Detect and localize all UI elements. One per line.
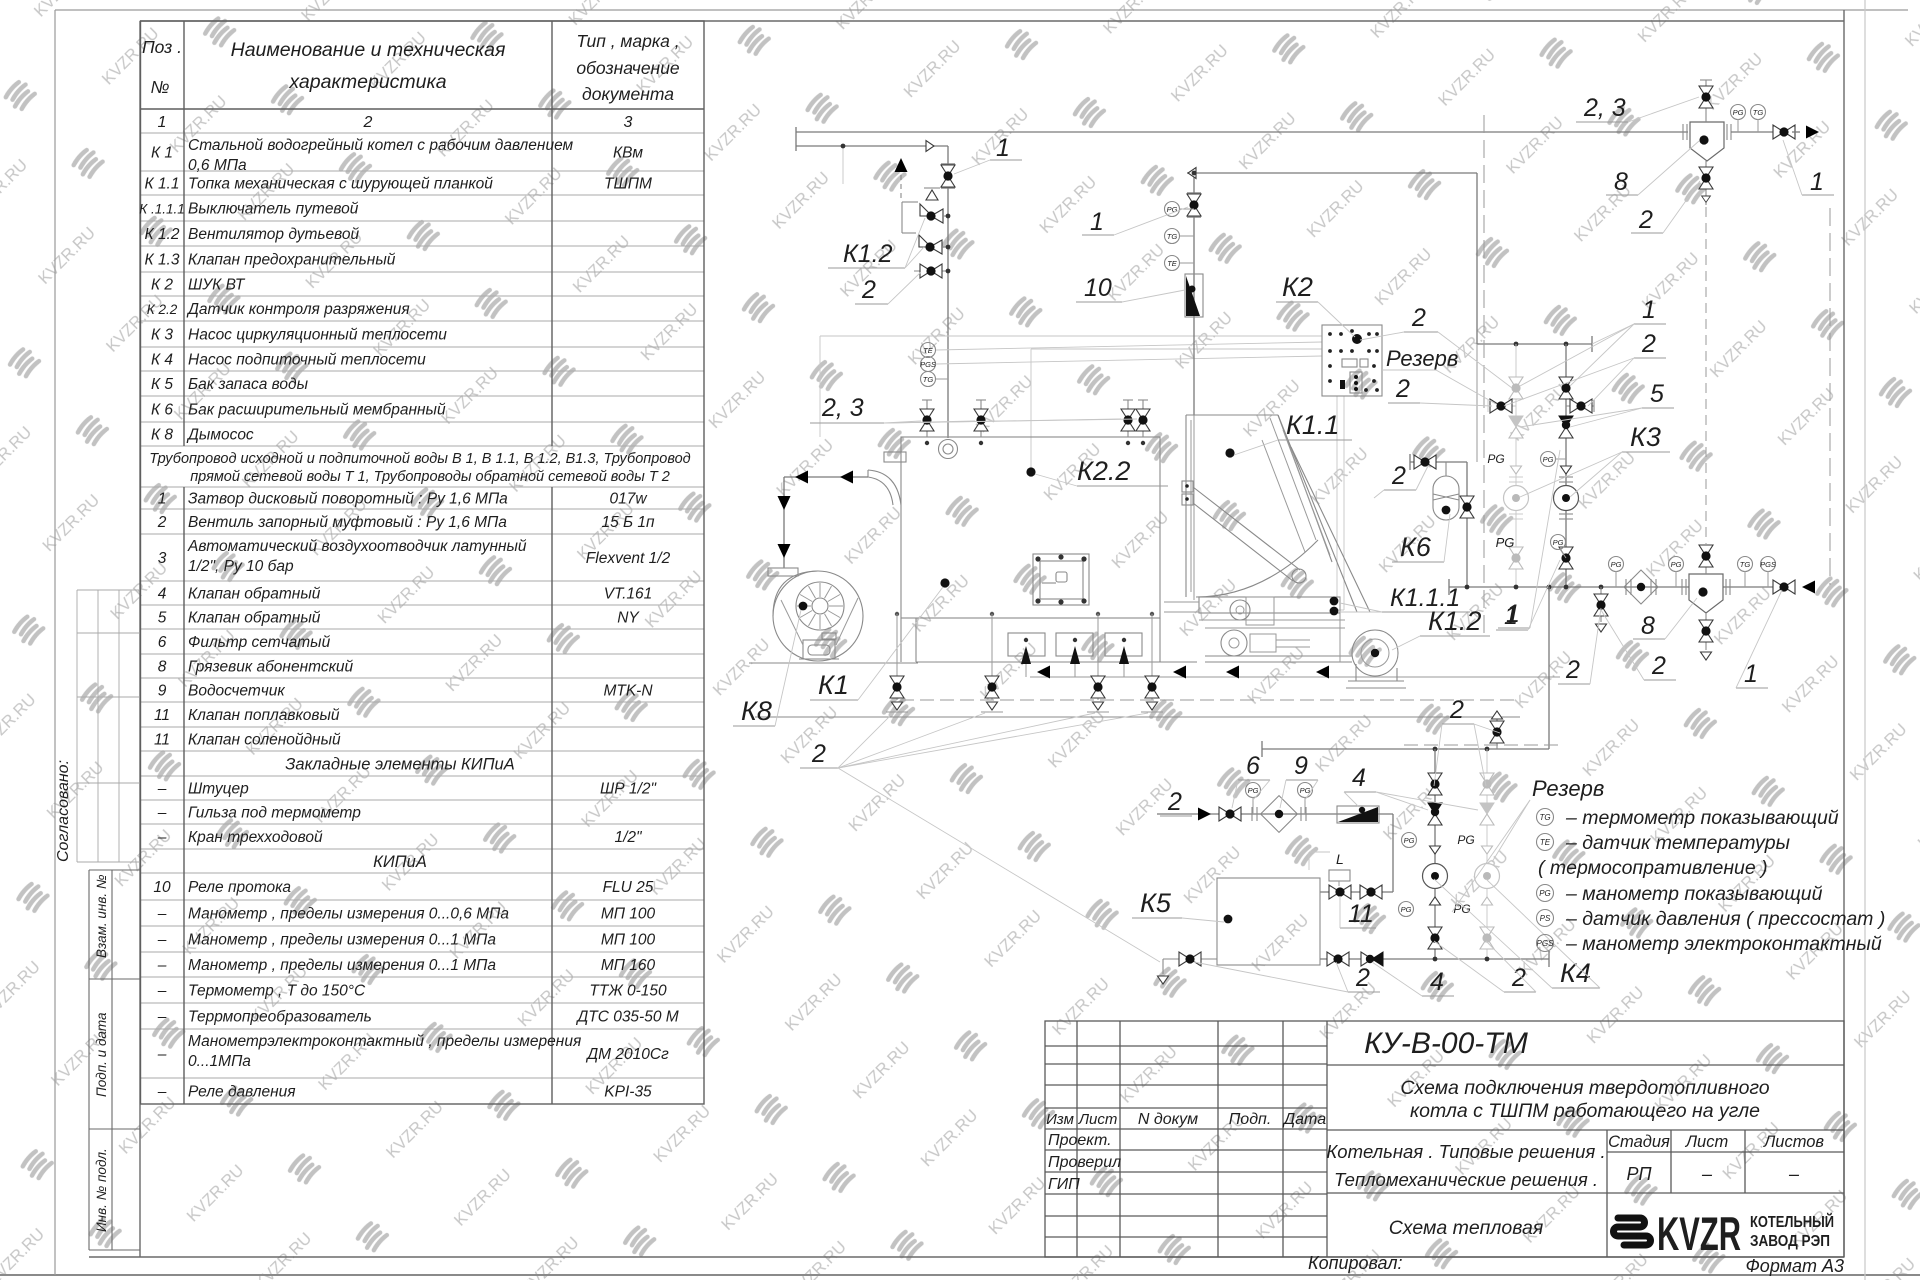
svg-text:5: 5 — [1650, 380, 1664, 408]
svg-text:Проверил: Проверил — [1048, 1154, 1121, 1171]
svg-text:ТТЖ 0-150: ТТЖ 0-150 — [589, 983, 667, 1000]
svg-text:Лист: Лист — [1685, 1133, 1728, 1151]
svg-text:Стадия: Стадия — [1608, 1133, 1670, 1151]
svg-text:Лист: Лист — [1078, 1111, 1118, 1128]
svg-text:–: – — [157, 983, 167, 1000]
svg-text:обозначение: обозначение — [576, 58, 680, 78]
svg-text:Согласовано:: Согласовано: — [55, 760, 72, 862]
svg-text:2: 2 — [811, 740, 826, 768]
svg-text:Стальной водогрейный котел с р: Стальной водогрейный котел с рабочим дав… — [188, 137, 574, 154]
svg-text:Проект.: Проект. — [1048, 1132, 1112, 1149]
svg-text:К3: К3 — [1630, 422, 1661, 452]
svg-text:К1.1: К1.1 — [1286, 410, 1339, 440]
svg-text:Наименование и техническая: Наименование и техническая — [231, 39, 506, 61]
svg-text:ШР 1/2": ШР 1/2" — [600, 781, 657, 798]
svg-text:К8: К8 — [741, 696, 772, 726]
svg-text:10: 10 — [153, 879, 171, 896]
svg-text:Котельная . Типовые решения .: Котельная . Типовые решения . — [1326, 1141, 1605, 1162]
svg-text:К2.2: К2.2 — [1077, 456, 1130, 486]
svg-text:PG: PG — [1733, 108, 1744, 117]
svg-text:L: L — [1336, 851, 1344, 867]
svg-text:4: 4 — [158, 586, 167, 603]
svg-text:Инв. № подл.: Инв. № подл. — [94, 1148, 109, 1232]
svg-text:К 2: К 2 — [151, 277, 173, 294]
svg-text:прямой сетевой воды Т 1,: прямой сетевой воды Т 1, Трубопроводы об… — [190, 469, 670, 485]
svg-text:Бак расширительный мембранный: Бак расширительный мембранный — [188, 402, 446, 419]
svg-text:NY: NY — [617, 610, 640, 627]
svg-text:Автоматический воздухоотводчик: Автоматический воздухоотводчик латунный — [187, 538, 527, 555]
svg-text:PG: PG — [1401, 905, 1412, 914]
svg-text:– датчик температуры: – датчик температуры — [1565, 832, 1790, 854]
svg-text:К .1.1.1: К .1.1.1 — [139, 202, 184, 217]
svg-text:1: 1 — [996, 134, 1010, 162]
svg-text:3: 3 — [158, 550, 167, 567]
svg-text:1: 1 — [1504, 602, 1518, 630]
svg-text:– манометр электроконтактный: – манометр электроконтактный — [1565, 933, 1882, 955]
svg-text:ДТС 035-50 М: ДТС 035-50 М — [575, 1009, 678, 1026]
svg-text:11: 11 — [154, 707, 170, 724]
svg-text:PGS: PGS — [920, 360, 936, 369]
svg-text:–: – — [157, 932, 167, 949]
svg-text:5: 5 — [158, 610, 167, 627]
svg-text:№: № — [151, 77, 170, 97]
svg-text:КУ-В-00-ТМ: КУ-В-00-ТМ — [1364, 1027, 1528, 1060]
svg-text:КИПиА: КИПиА — [373, 853, 427, 871]
svg-text:К 1.3: К 1.3 — [145, 252, 180, 269]
svg-text:Затвор дисковый поворотный :: Затвор дисковый поворотный : Ру 1,6 МПа — [188, 491, 508, 508]
svg-text:Закладные элементы КИПиА: Закладные элементы КИПиА — [285, 756, 514, 774]
svg-text:( термосопративление ): ( термосопративление ) — [1538, 857, 1768, 879]
svg-text:К1.2: К1.2 — [843, 240, 893, 268]
svg-text:6: 6 — [158, 634, 167, 651]
svg-text:– датчик давления ( прессост: – датчик давления ( прессостат ) — [1565, 908, 1885, 930]
svg-text:Террмопреобразователь: Террмопреобразователь — [188, 1009, 372, 1026]
svg-text:Топка механическая с шурующей: Топка механическая с шурующей планкой — [188, 176, 493, 193]
svg-text:Схема тепловая: Схема тепловая — [1389, 1217, 1544, 1239]
svg-text:PG: PG — [1539, 889, 1551, 898]
svg-text:Flexvent 1/2: Flexvent 1/2 — [586, 550, 671, 567]
svg-text:1: 1 — [158, 114, 167, 131]
svg-text:PG: PG — [1457, 833, 1474, 847]
svg-text:2: 2 — [1411, 304, 1426, 332]
svg-text:1: 1 — [1810, 168, 1824, 196]
svg-text:Клапан соленойдный: Клапан соленойдный — [188, 732, 341, 749]
svg-text:Манометр , пределы измерения: Манометр , пределы измерения 0...1 МПа — [188, 932, 496, 949]
svg-text:Тип , марка ,: Тип , марка , — [576, 31, 679, 51]
svg-text:К 8: К 8 — [151, 427, 173, 444]
svg-text:3: 3 — [624, 114, 633, 131]
svg-text:Грязевик абонентский: Грязевик абонентский — [188, 659, 354, 676]
svg-text:11: 11 — [1348, 900, 1374, 928]
svg-text:11: 11 — [154, 732, 170, 749]
svg-text:TE: TE — [1540, 838, 1551, 847]
svg-text:Схема подключения твердотоплив: Схема подключения твердотопливного — [1400, 1077, 1769, 1099]
svg-text:К 1.2: К 1.2 — [145, 226, 180, 243]
svg-text:МП 100: МП 100 — [601, 906, 656, 923]
svg-text:Термометр , Т до 150°С: Термометр , Т до 150°С — [188, 983, 366, 1000]
svg-text:К 5: К 5 — [151, 376, 173, 393]
svg-text:К5: К5 — [1140, 888, 1172, 918]
svg-text:2, 3: 2, 3 — [1583, 94, 1626, 122]
svg-text:МП 100: МП 100 — [601, 932, 656, 949]
svg-text:ЗАВОД РЭП: ЗАВОД РЭП — [1750, 1233, 1830, 1250]
svg-text:Кран трехходовой: Кран трехходовой — [188, 829, 323, 846]
svg-text:КОТЕЛЬНЫЙ: КОТЕЛЬНЫЙ — [1750, 1212, 1834, 1231]
svg-text:–: – — [157, 906, 167, 923]
svg-text:Листов: Листов — [1763, 1133, 1824, 1151]
svg-text:Реле протока: Реле протока — [188, 879, 291, 896]
svg-text:PG: PG — [1248, 786, 1259, 795]
svg-text:– термометр показывающий: – термометр показывающий — [1565, 807, 1839, 829]
svg-text:15 Б 1п: 15 Б 1п — [601, 514, 655, 531]
svg-text:Резерв: Резерв — [1532, 776, 1604, 801]
svg-text:ДМ 2010Сг: ДМ 2010Сг — [585, 1046, 669, 1063]
svg-text:FLU 25: FLU 25 — [603, 879, 654, 896]
svg-text:РП: РП — [1626, 1164, 1652, 1184]
svg-text:PG: PG — [1553, 538, 1564, 547]
svg-text:TG: TG — [1167, 232, 1178, 241]
svg-text:Гильза под термометр: Гильза под термометр — [188, 805, 361, 822]
svg-text:PGS: PGS — [1537, 939, 1555, 948]
svg-text:PG: PG — [1611, 560, 1622, 569]
svg-text:1: 1 — [1744, 660, 1758, 688]
svg-text:0...1МПа: 0...1МПа — [188, 1053, 251, 1070]
svg-text:KVZR: KVZR — [1657, 1207, 1741, 1260]
svg-text:Резерв: Резерв — [1386, 346, 1458, 371]
svg-text:Насос циркуляционный теплосети: Насос циркуляционный теплосети — [188, 327, 447, 344]
svg-text:Манометр , пределы измерения: Манометр , пределы измерения 0...0,6 МПа — [188, 906, 509, 923]
svg-text:Бак запаса воды: Бак запаса воды — [188, 376, 309, 393]
svg-text:К2: К2 — [1282, 272, 1313, 302]
svg-text:–: – — [157, 1046, 167, 1063]
svg-text:ТШПМ: ТШПМ — [604, 176, 652, 193]
svg-text:–: – — [157, 829, 167, 846]
svg-text:VT.161: VT.161 — [604, 586, 653, 603]
svg-text:TG: TG — [1753, 108, 1764, 117]
svg-text:PG: PG — [1487, 452, 1504, 466]
svg-text:0,6 МПа: 0,6 МПа — [188, 157, 247, 174]
svg-text:Изм: Изм — [1046, 1111, 1074, 1128]
svg-text:8: 8 — [1614, 168, 1628, 196]
svg-text:TG: TG — [923, 375, 934, 384]
svg-text:К 6: К 6 — [151, 402, 173, 419]
svg-text:К 3: К 3 — [151, 327, 173, 344]
svg-text:котла с ТШПМ работающего на уг: котла с ТШПМ работающего на угле — [1410, 1100, 1760, 1122]
svg-text:1: 1 — [158, 491, 167, 508]
svg-text:2, 3: 2, 3 — [821, 394, 864, 422]
svg-text:документа: документа — [582, 84, 674, 104]
svg-text:Реле давления: Реле давления — [188, 1084, 296, 1101]
svg-text:KPI-35: KPI-35 — [604, 1084, 652, 1101]
svg-text:PG: PG — [1671, 560, 1682, 569]
svg-text:Дымосос: Дымосос — [186, 427, 254, 444]
svg-text:Формат А3: Формат А3 — [1746, 1256, 1845, 1276]
svg-text:4: 4 — [1352, 764, 1366, 792]
svg-text:2: 2 — [1391, 462, 1406, 490]
svg-text:Водосчетчик: Водосчетчик — [188, 683, 285, 700]
svg-text:PG: PG — [1167, 205, 1178, 214]
svg-text:1/2", Ру 10 бар: 1/2", Ру 10 бар — [188, 558, 294, 575]
svg-text:4: 4 — [1430, 968, 1444, 996]
svg-text:К1.2: К1.2 — [1428, 606, 1481, 636]
svg-text:2: 2 — [1651, 652, 1666, 680]
svg-text:К6: К6 — [1400, 532, 1432, 562]
svg-text:9: 9 — [158, 683, 167, 700]
svg-text:2: 2 — [1395, 375, 1410, 403]
svg-text:6: 6 — [1246, 752, 1260, 780]
svg-text:–: – — [157, 781, 167, 798]
svg-text:–: – — [157, 1009, 167, 1026]
svg-text:N докум: N докум — [1138, 1111, 1198, 1128]
svg-text:Дата: Дата — [1282, 1111, 1326, 1128]
svg-text:К 2.2: К 2.2 — [147, 302, 178, 317]
svg-text:2: 2 — [1641, 330, 1656, 358]
svg-text:характеристика: характеристика — [288, 71, 446, 93]
svg-text:PG: PG — [1404, 836, 1415, 845]
svg-text:TE: TE — [923, 346, 934, 355]
svg-text:Взам. инв. №: Взам. инв. № — [94, 874, 109, 958]
svg-text:К 4: К 4 — [151, 352, 173, 369]
svg-text:–: – — [1701, 1164, 1713, 1184]
svg-text:Клапан предохранительный: Клапан предохранительный — [188, 252, 396, 269]
svg-text:Клапан обратный: Клапан обратный — [188, 586, 321, 603]
svg-text:TE: TE — [1167, 259, 1178, 268]
svg-text:9: 9 — [1294, 752, 1308, 780]
svg-text:Выключатель путевой: Выключатель путевой — [188, 201, 359, 218]
svg-text:PGS: PGS — [1760, 560, 1776, 569]
svg-text:–: – — [157, 957, 167, 974]
svg-text:PS: PS — [1540, 914, 1551, 923]
svg-text:К 1.1: К 1.1 — [145, 176, 180, 193]
svg-text:8: 8 — [158, 659, 167, 676]
svg-text:Вентиль запорный муфтовый : Р: Вентиль запорный муфтовый : Ру 1,6 МПа — [188, 514, 507, 531]
svg-text:К4: К4 — [1560, 958, 1591, 988]
svg-text:К1: К1 — [818, 670, 849, 700]
svg-text:Манометрэлектроконтактный , п: Манометрэлектроконтактный , пределы изме… — [188, 1033, 581, 1050]
svg-text:8: 8 — [1641, 612, 1655, 640]
svg-text:Поз .: Поз . — [142, 37, 182, 57]
svg-text:1: 1 — [1090, 208, 1104, 236]
svg-text:PG: PG — [1543, 455, 1554, 464]
svg-text:К 1: К 1 — [151, 145, 173, 162]
svg-text:–: – — [157, 805, 167, 822]
svg-text:– манометр показывающий: – манометр показывающий — [1565, 883, 1823, 905]
svg-text:Подп.: Подп. — [1229, 1111, 1272, 1128]
svg-text:МП 160: МП 160 — [601, 957, 656, 974]
svg-text:Фильтр сетчатый: Фильтр сетчатый — [188, 634, 331, 651]
svg-text:КВм: КВм — [613, 145, 643, 162]
svg-text:–: – — [157, 1084, 167, 1101]
svg-text:Подп. и дата: Подп. и дата — [94, 1012, 109, 1097]
svg-text:Трубопровод исходной и подп: Трубопровод исходной и подпиточной воды … — [149, 451, 690, 467]
svg-text:1/2": 1/2" — [614, 829, 643, 846]
svg-text:2: 2 — [1565, 656, 1580, 684]
svg-text:2: 2 — [1167, 788, 1182, 816]
svg-text:1: 1 — [1642, 296, 1656, 324]
svg-text:–: – — [1788, 1164, 1800, 1184]
svg-text:017w: 017w — [609, 491, 648, 508]
svg-text:PG: PG — [1496, 535, 1515, 550]
svg-text:Клапан поплавковый: Клапан поплавковый — [188, 707, 340, 724]
svg-text:2: 2 — [1638, 206, 1653, 234]
svg-text:ШУК ВТ: ШУК ВТ — [188, 277, 246, 294]
svg-text:PG: PG — [1453, 902, 1470, 916]
svg-text:2: 2 — [363, 114, 373, 131]
svg-text:TG: TG — [1740, 560, 1751, 569]
svg-text:Датчик контроля разряжения: Датчик контроля разряжения — [186, 301, 410, 318]
svg-text:TG: TG — [1539, 813, 1550, 822]
svg-text:2: 2 — [157, 514, 167, 531]
svg-text:Копировал:: Копировал: — [1308, 1253, 1403, 1273]
svg-text:2: 2 — [1449, 696, 1464, 724]
svg-text:Штуцер: Штуцер — [188, 781, 249, 798]
svg-text:2: 2 — [1355, 964, 1370, 992]
svg-text:10: 10 — [1084, 274, 1112, 302]
svg-text:ГИП: ГИП — [1048, 1176, 1080, 1193]
svg-text:Манометр , пределы измерения: Манометр , пределы измерения 0...1 МПа — [188, 957, 496, 974]
svg-text:Клапан обратный: Клапан обратный — [188, 610, 321, 627]
svg-text:2: 2 — [861, 276, 876, 304]
svg-text:MTK-N: MTK-N — [603, 683, 653, 700]
svg-text:Насос подпиточный теплосети: Насос подпиточный теплосети — [188, 352, 426, 369]
svg-text:Тепломеханические решения .: Тепломеханические решения . — [1334, 1169, 1598, 1190]
svg-text:Вентилятор дутьевой: Вентилятор дутьевой — [188, 226, 360, 243]
